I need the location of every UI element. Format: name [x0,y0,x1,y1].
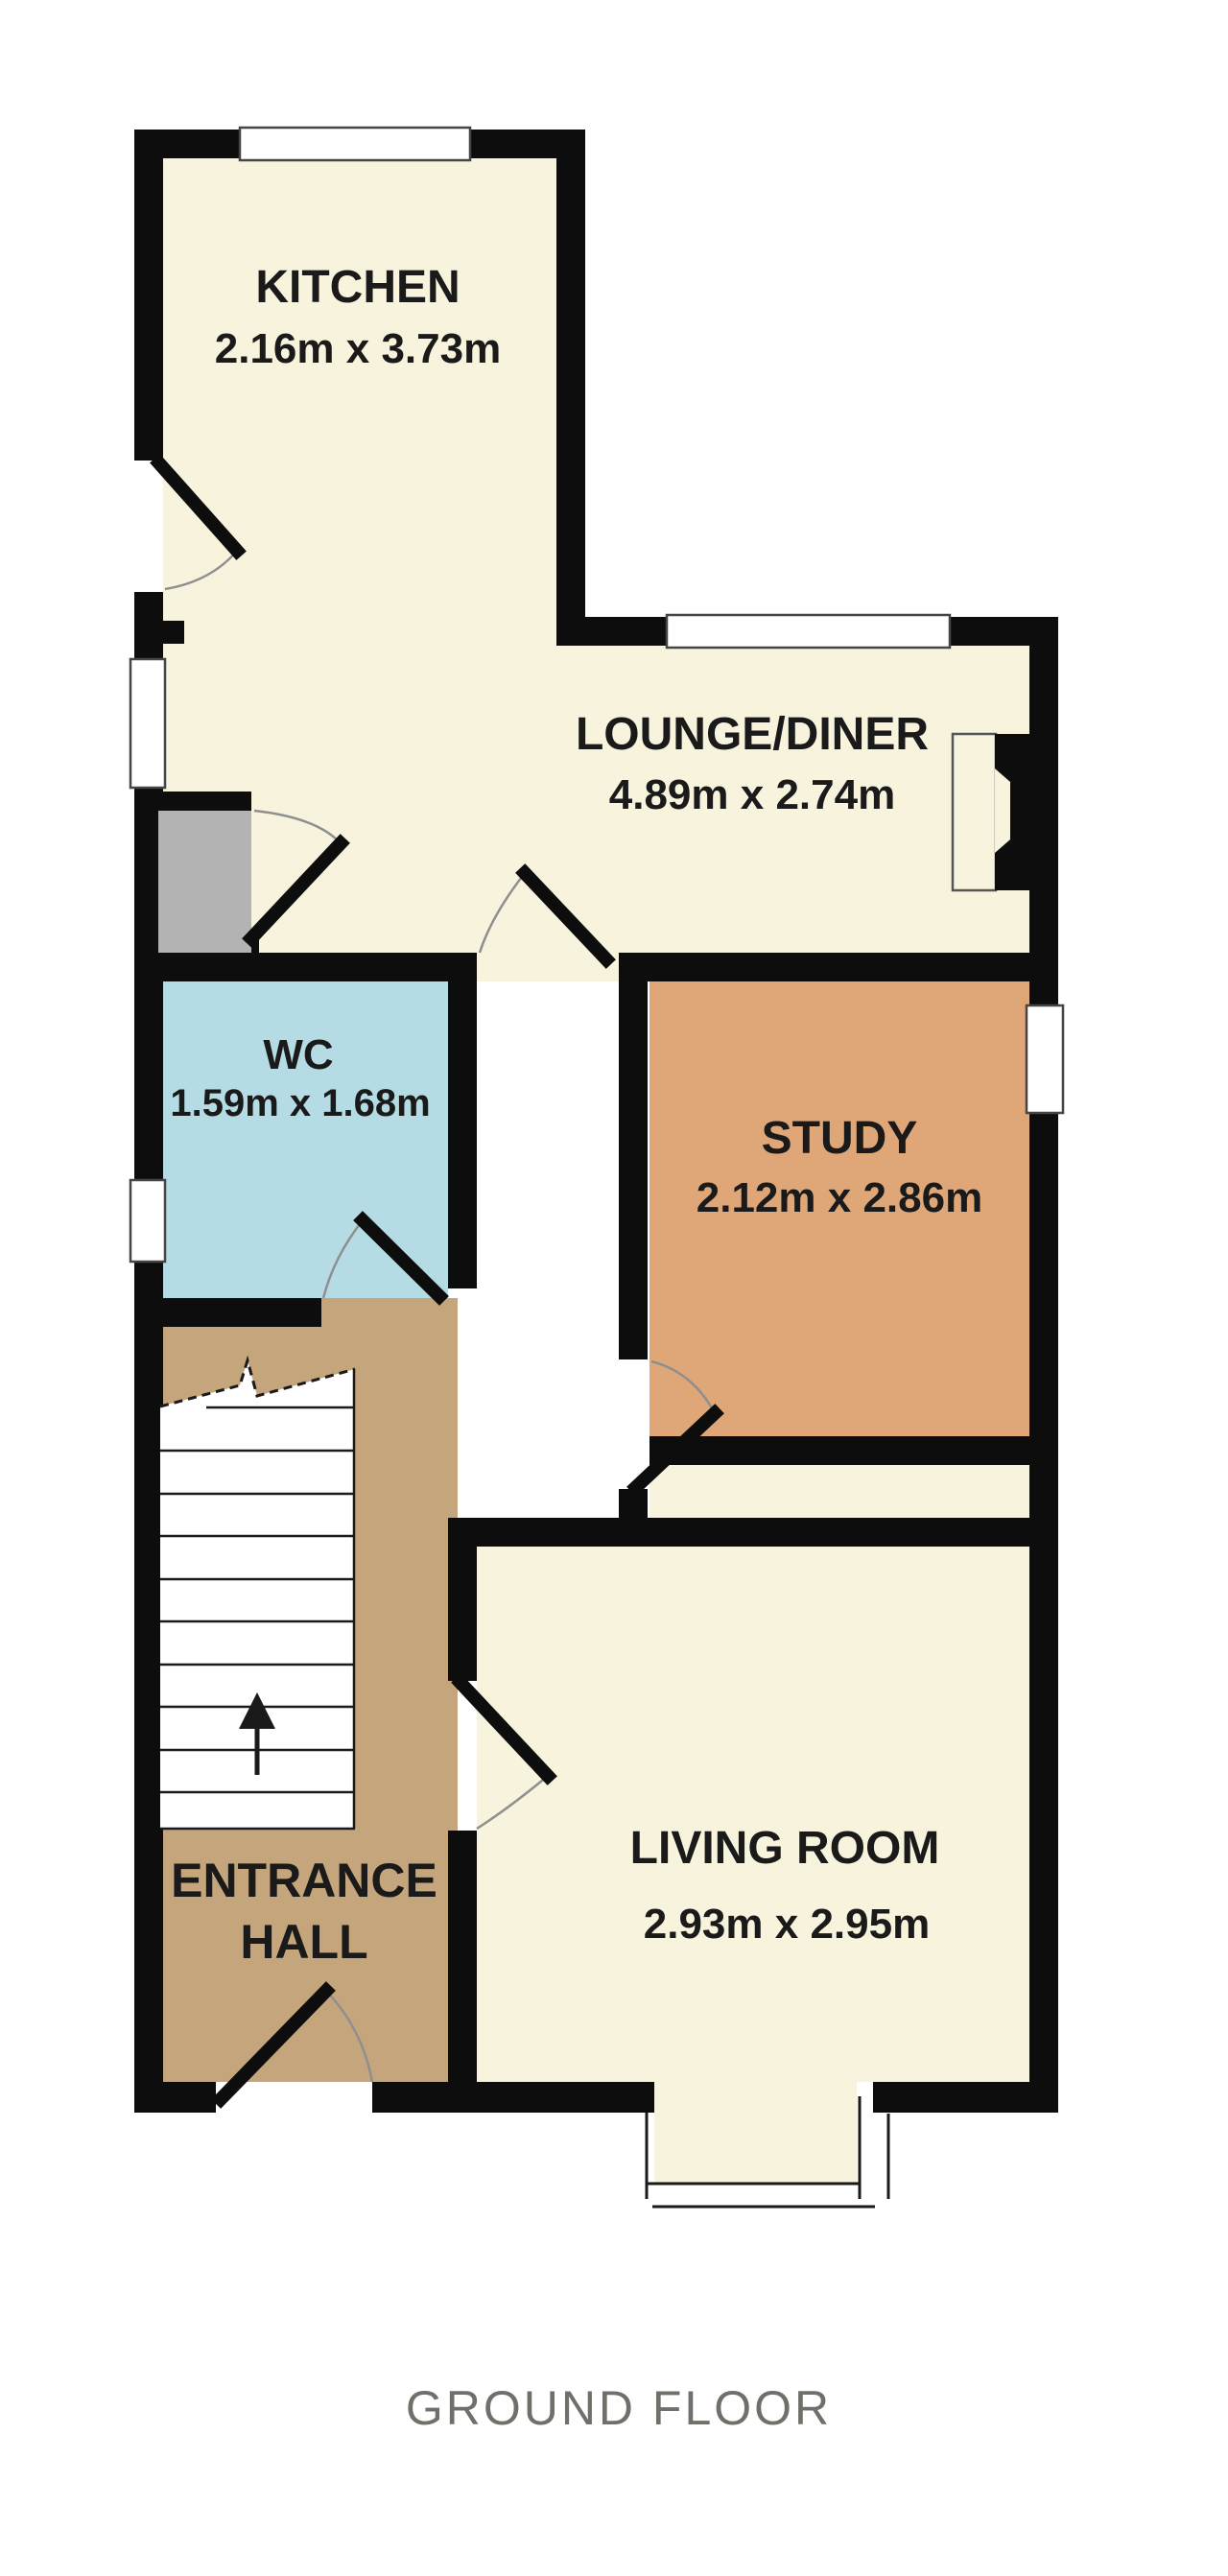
kitchen-label: KITCHEN [255,262,460,313]
storage-cupboard [158,811,251,953]
floorplan-page: KITCHEN 2.16m x 3.73m LOUNGE/DINER 4.89m… [0,0,1228,2576]
window [130,1180,165,1262]
lounge-diner-label: LOUNGE/DINER [576,709,929,760]
wall-segment [448,1518,1058,1547]
between-walls-strip [649,1465,1058,1518]
wall-segment [585,617,667,646]
wall-segment [134,2082,216,2113]
living-room-label: LIVING ROOM [630,1823,940,1874]
wall-segment [1029,617,1058,2113]
bay-window-floor [654,2082,857,2184]
fireplace [953,734,1029,890]
wc-dimensions: 1.59m x 1.68m [170,1082,430,1124]
wall-segment [134,1262,163,2113]
wc-label: WC [263,1031,333,1078]
ground-floor-plan: KITCHEN 2.16m x 3.73m LOUNGE/DINER 4.89m… [0,0,1228,2576]
wc-floor [163,981,448,1298]
window [1027,1005,1063,1113]
staircase [160,1360,355,1829]
wall-segment [448,953,477,1288]
kitchen-dimensions: 2.16m x 3.73m [215,325,501,372]
fireplace-surround [953,734,996,890]
wall-segment [372,2082,654,2113]
cupboard-wall-cap [158,792,251,811]
wall-segment [556,130,585,646]
wall-segment [448,1831,477,2113]
window [667,615,950,648]
wall-segment [873,2082,1058,2113]
wall-segment [134,130,163,461]
living-room-floor [477,1547,1029,2082]
wall-segment [134,592,163,659]
wall-segment [619,953,648,1359]
study-label: STUDY [762,1113,918,1164]
living-room-dimensions: 2.93m x 2.95m [644,1901,930,1948]
window [130,659,165,788]
wall-segment [134,1298,321,1327]
entrance-hall-label-line1: ENTRANCE [171,1854,437,1907]
wall-stub [163,621,184,644]
window [240,128,470,160]
fireplace-opening [995,768,1010,853]
wall-segment [649,1436,1058,1465]
wall-segment [619,953,1058,981]
floor-title: GROUND FLOOR [406,2381,832,2435]
wall-segment [134,953,477,981]
lounge-diner-dimensions: 4.89m x 2.74m [609,771,895,818]
study-doorway-floor [619,1359,649,1489]
corridor-floor [458,981,619,1518]
entrance-hall-label-line2: HALL [240,1915,367,1969]
study-dimensions: 2.12m x 2.86m [697,1174,982,1221]
corridor-floor-lower [458,1298,477,1518]
wall-segment [448,1518,477,1681]
wall-segment [134,130,240,158]
